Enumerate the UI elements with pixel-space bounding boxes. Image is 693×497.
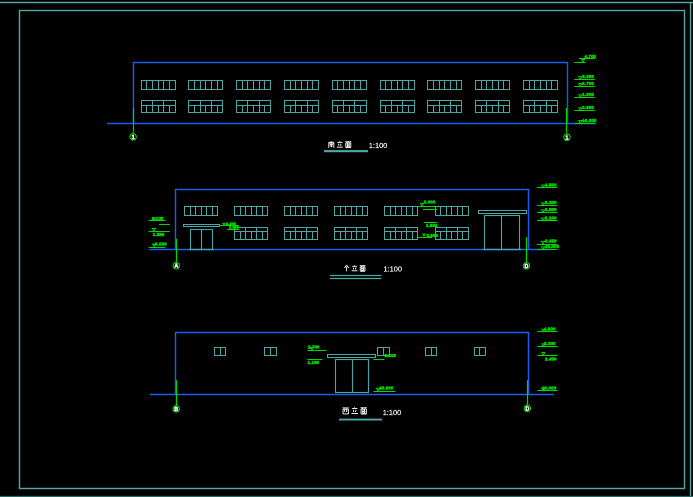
svg-text:0.450: 0.450 [545, 239, 557, 244]
svg-text:1.900: 1.900 [582, 92, 594, 97]
svg-text:1:100: 1:100 [384, 265, 403, 274]
svg-text:4.700: 4.700 [585, 54, 597, 59]
svg-text:1: 1 [565, 135, 568, 141]
svg-text:1:100: 1:100 [383, 408, 402, 417]
svg-text:D: D [525, 406, 529, 412]
svg-text:2.700: 2.700 [308, 344, 320, 349]
svg-text:2.700: 2.700 [582, 81, 594, 86]
svg-text:2.400: 2.400 [545, 356, 557, 361]
svg-text:1.500: 1.500 [426, 223, 438, 228]
svg-text:3.000: 3.000 [424, 199, 436, 204]
svg-text:1: 1 [132, 135, 135, 141]
svg-text:2.200: 2.200 [385, 353, 397, 358]
svg-text:±0.000: ±0.000 [582, 118, 597, 123]
svg-text:3.300: 3.300 [544, 341, 556, 346]
svg-text:D: D [525, 264, 529, 270]
svg-text:B: B [174, 407, 178, 413]
svg-text:±0.000: ±0.000 [542, 386, 557, 391]
svg-text:1.100: 1.100 [308, 360, 320, 365]
svg-text:2.200: 2.200 [229, 225, 239, 229]
svg-text:1:100: 1:100 [369, 141, 388, 150]
svg-text:4.500: 4.500 [545, 182, 557, 187]
svg-text:2.100: 2.100 [545, 215, 557, 220]
svg-text:1.350: 1.350 [153, 232, 165, 237]
svg-text:A: A [174, 264, 178, 270]
svg-text:0.900: 0.900 [582, 105, 594, 110]
svg-text:4.500: 4.500 [544, 327, 556, 332]
svg-text:3.300: 3.300 [545, 200, 557, 205]
svg-text:3.300: 3.300 [582, 74, 594, 79]
svg-text:±0.000: ±0.000 [545, 244, 560, 249]
svg-text:±0.000: ±0.000 [379, 385, 394, 390]
svg-text:2.800: 2.800 [545, 207, 557, 212]
